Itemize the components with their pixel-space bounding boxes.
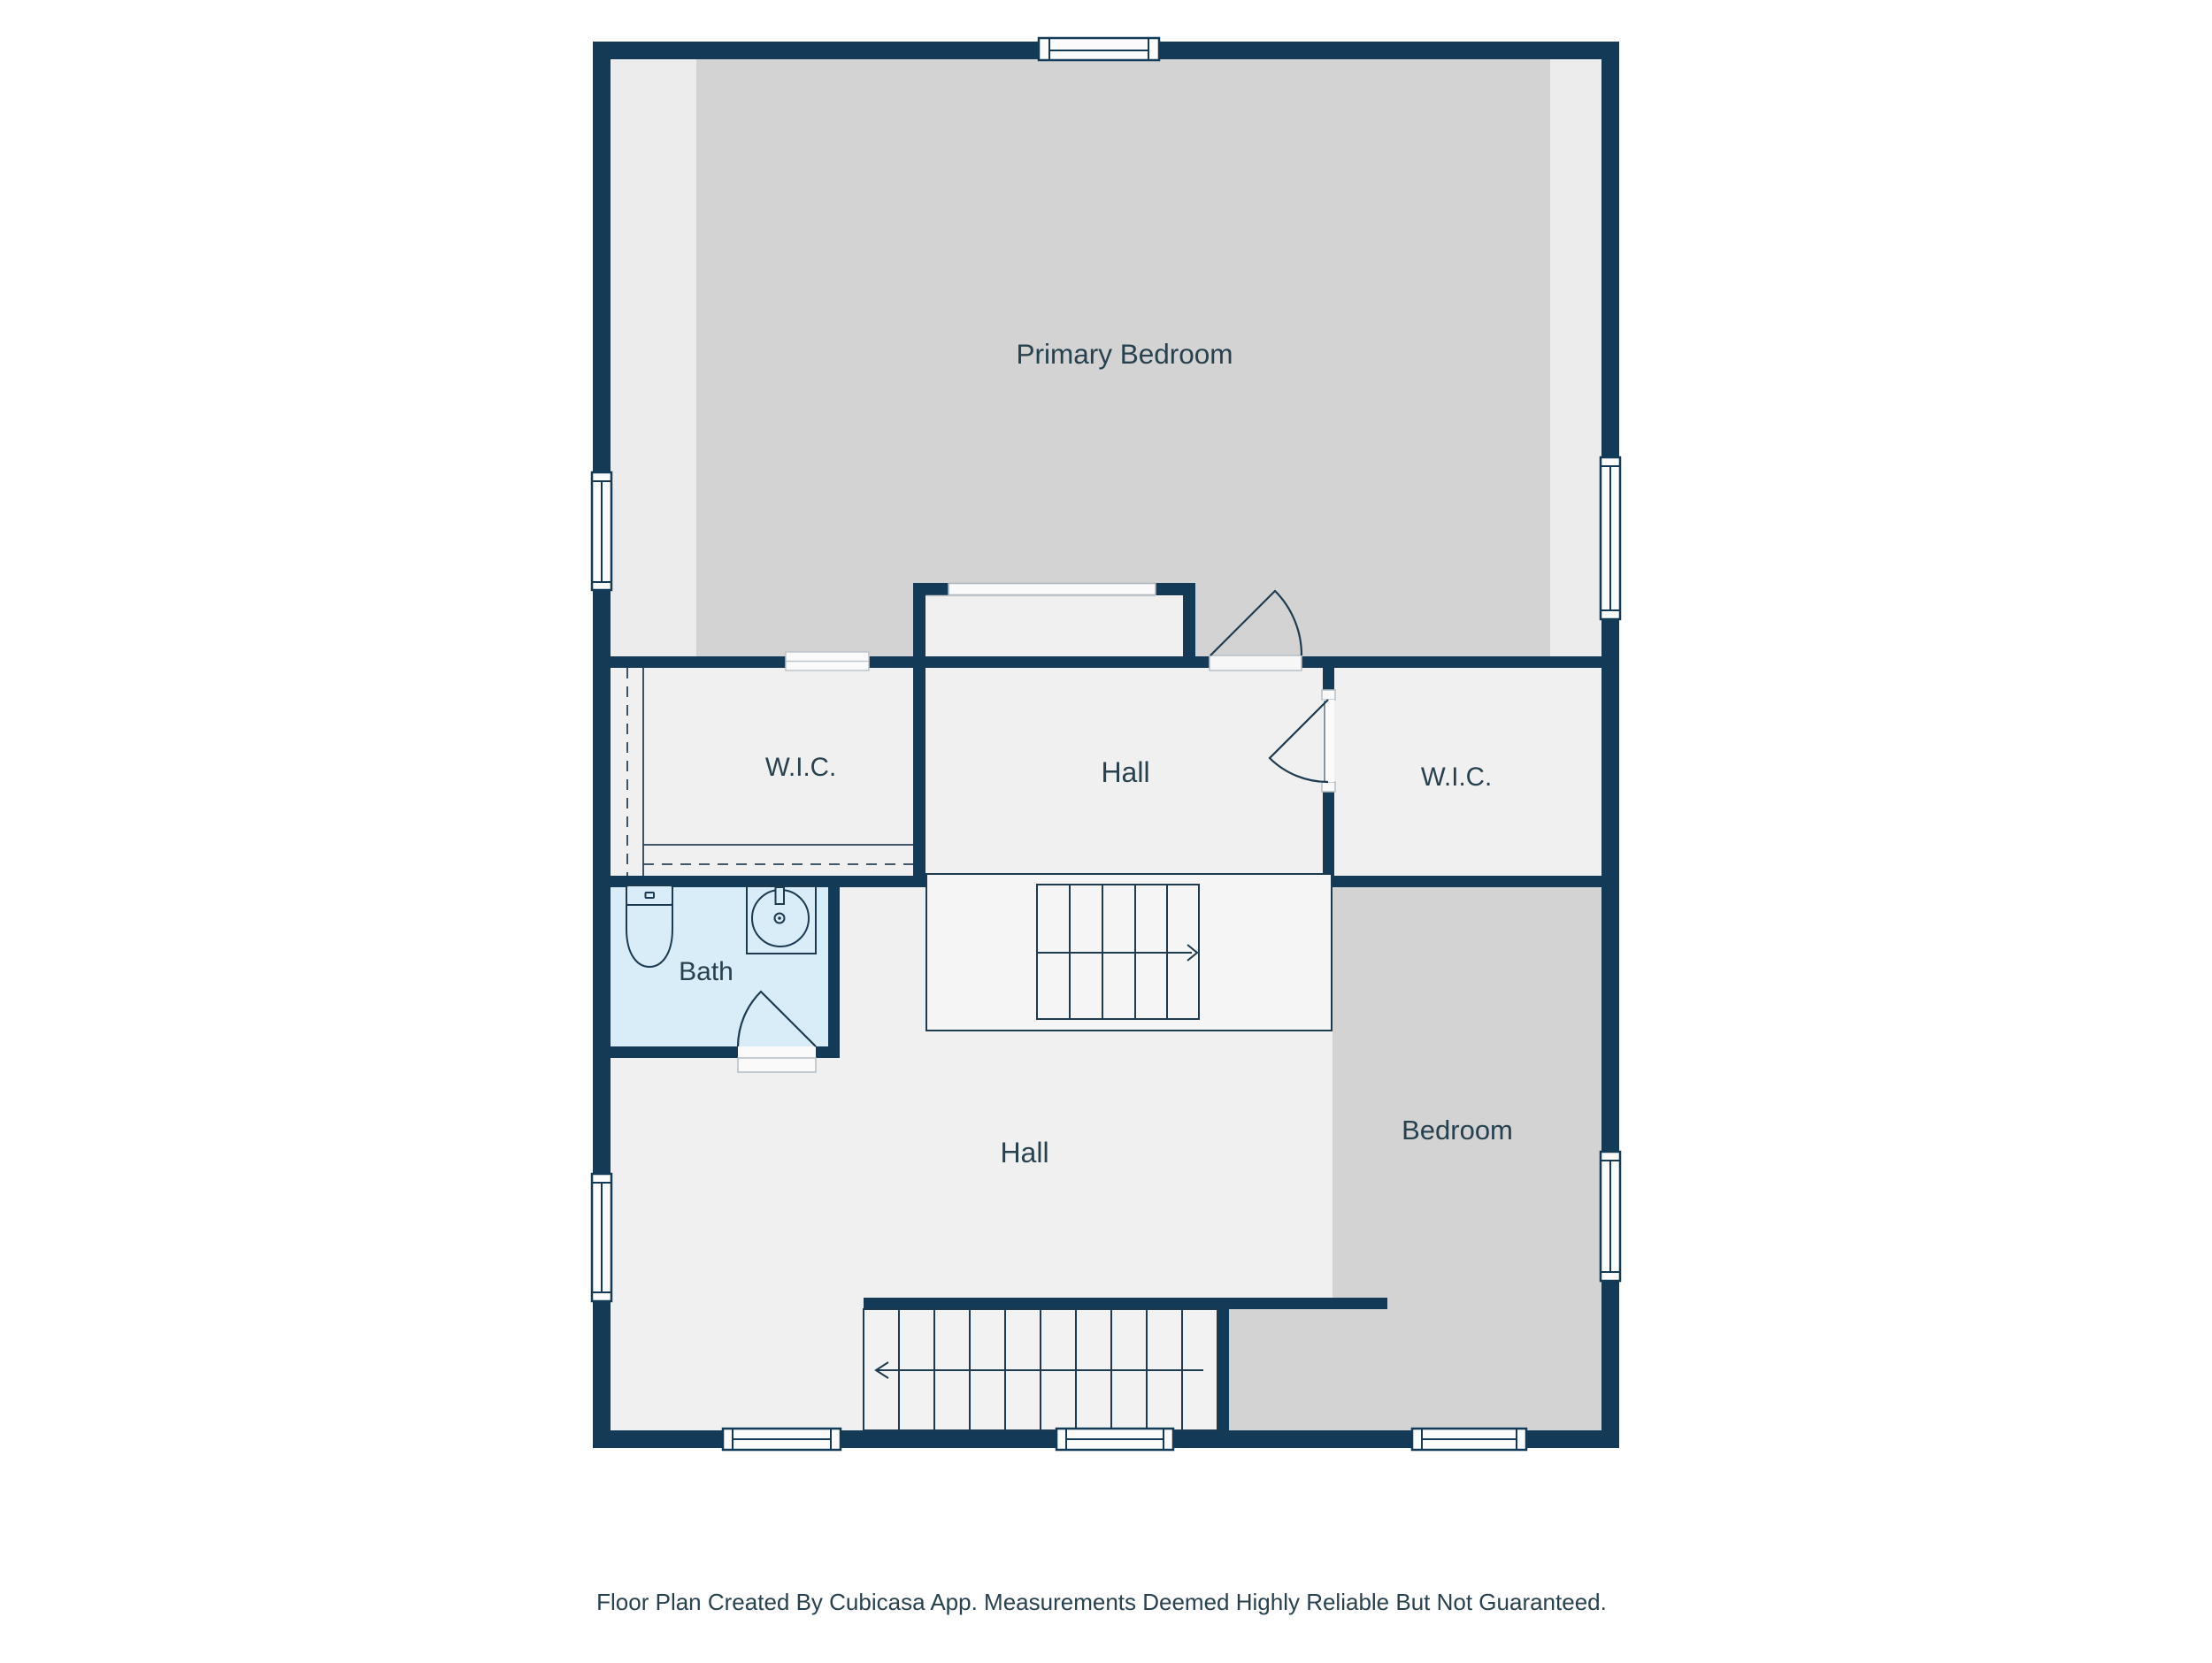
svg-text:Primary Bedroom: Primary Bedroom	[1016, 338, 1233, 370]
svg-text:W.I.C.: W.I.C.	[765, 753, 836, 782]
svg-text:Hall: Hall	[1000, 1137, 1048, 1169]
svg-text:Floor Plan Created By Cubicasa: Floor Plan Created By Cubicasa App. Meas…	[596, 1589, 1607, 1615]
svg-text:W.I.C.: W.I.C.	[1421, 763, 1492, 792]
svg-text:Hall: Hall	[1101, 756, 1149, 788]
svg-text:Bath: Bath	[679, 957, 733, 986]
svg-text:Bedroom: Bedroom	[1402, 1115, 1513, 1146]
